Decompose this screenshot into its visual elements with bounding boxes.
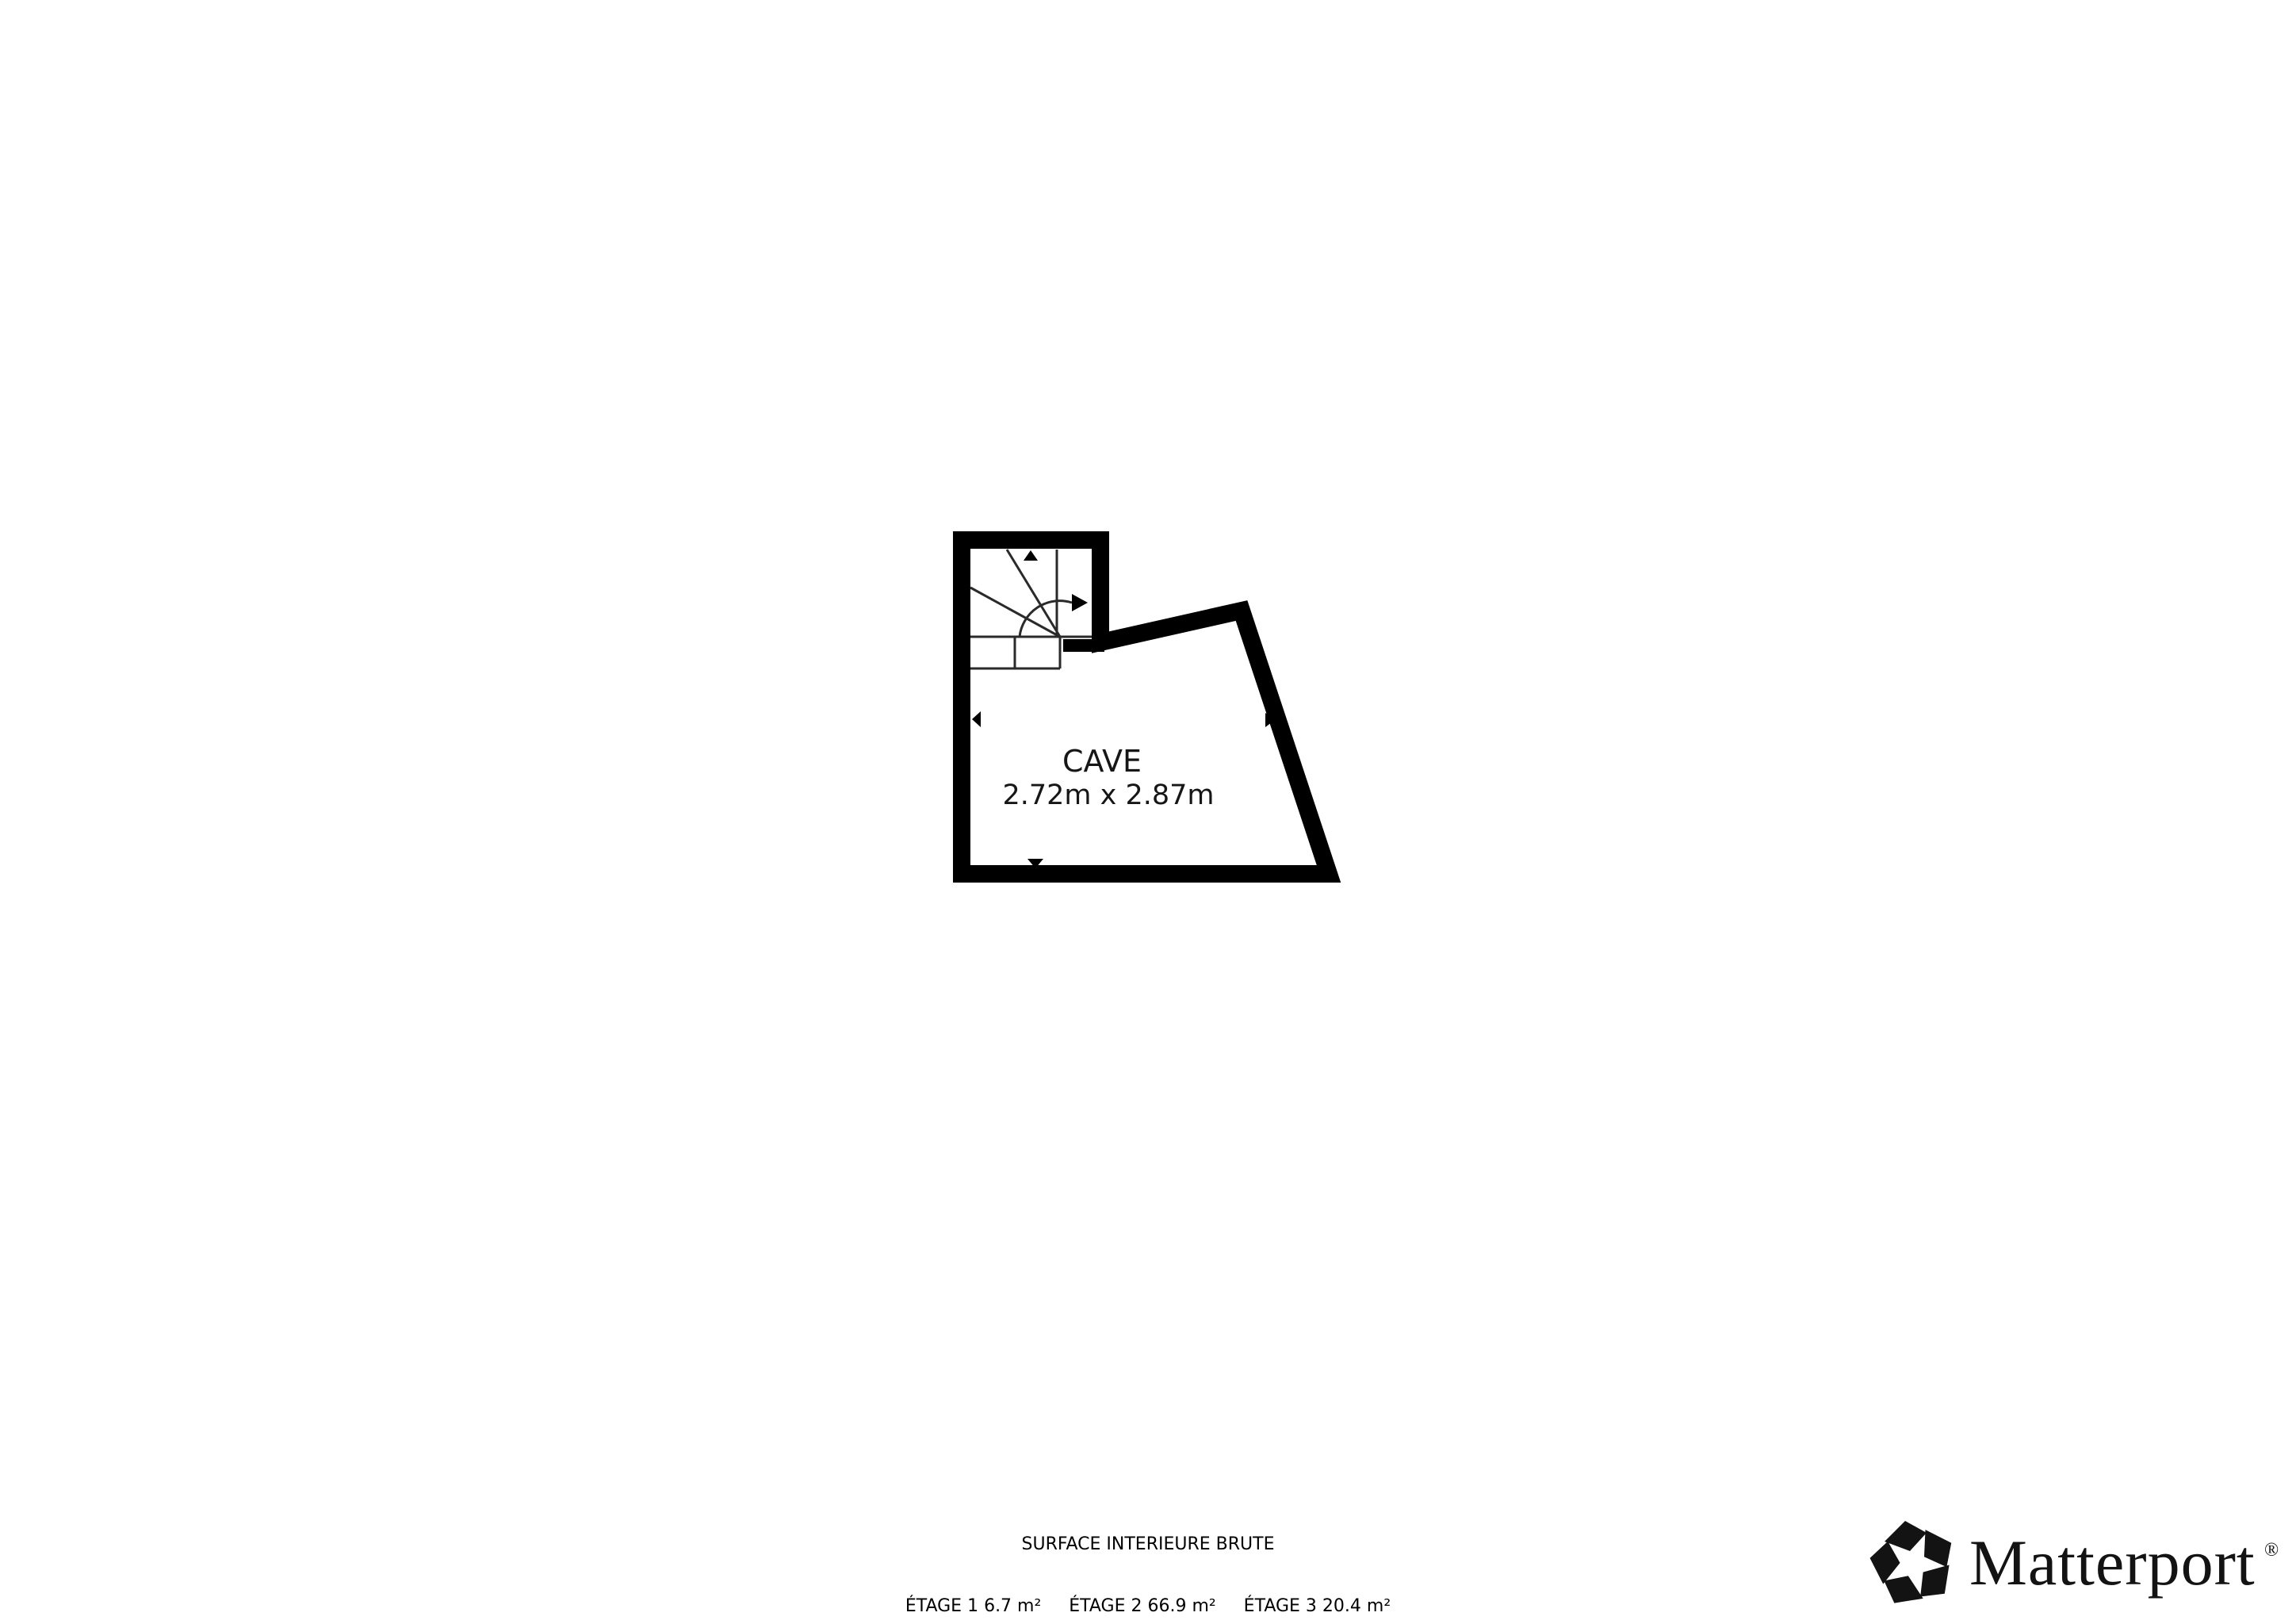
room-walls-outline	[962, 540, 1329, 874]
room-dimensions-label: 2.72m x 2.87m	[1002, 779, 1214, 811]
surface-summary: SURFACE INTERIEURE BRUTE ÉTAGE 1 6.7 m² …	[0, 1493, 2296, 1624]
surface-summary-title: SURFACE INTERIEURE BRUTE	[0, 1534, 2296, 1555]
surface-summary-floors: ÉTAGE 1 6.7 m² ÉTAGE 2 66.9 m² ÉTAGE 3 2…	[0, 1596, 2296, 1617]
floor-plan-svg: CAVE 2.72m x 2.87m Matterport ®	[0, 0, 2296, 1624]
floor-plan-page: CAVE 2.72m x 2.87m Matterport ® SURFACE …	[0, 0, 2296, 1624]
room-name-label: CAVE	[1062, 744, 1142, 779]
